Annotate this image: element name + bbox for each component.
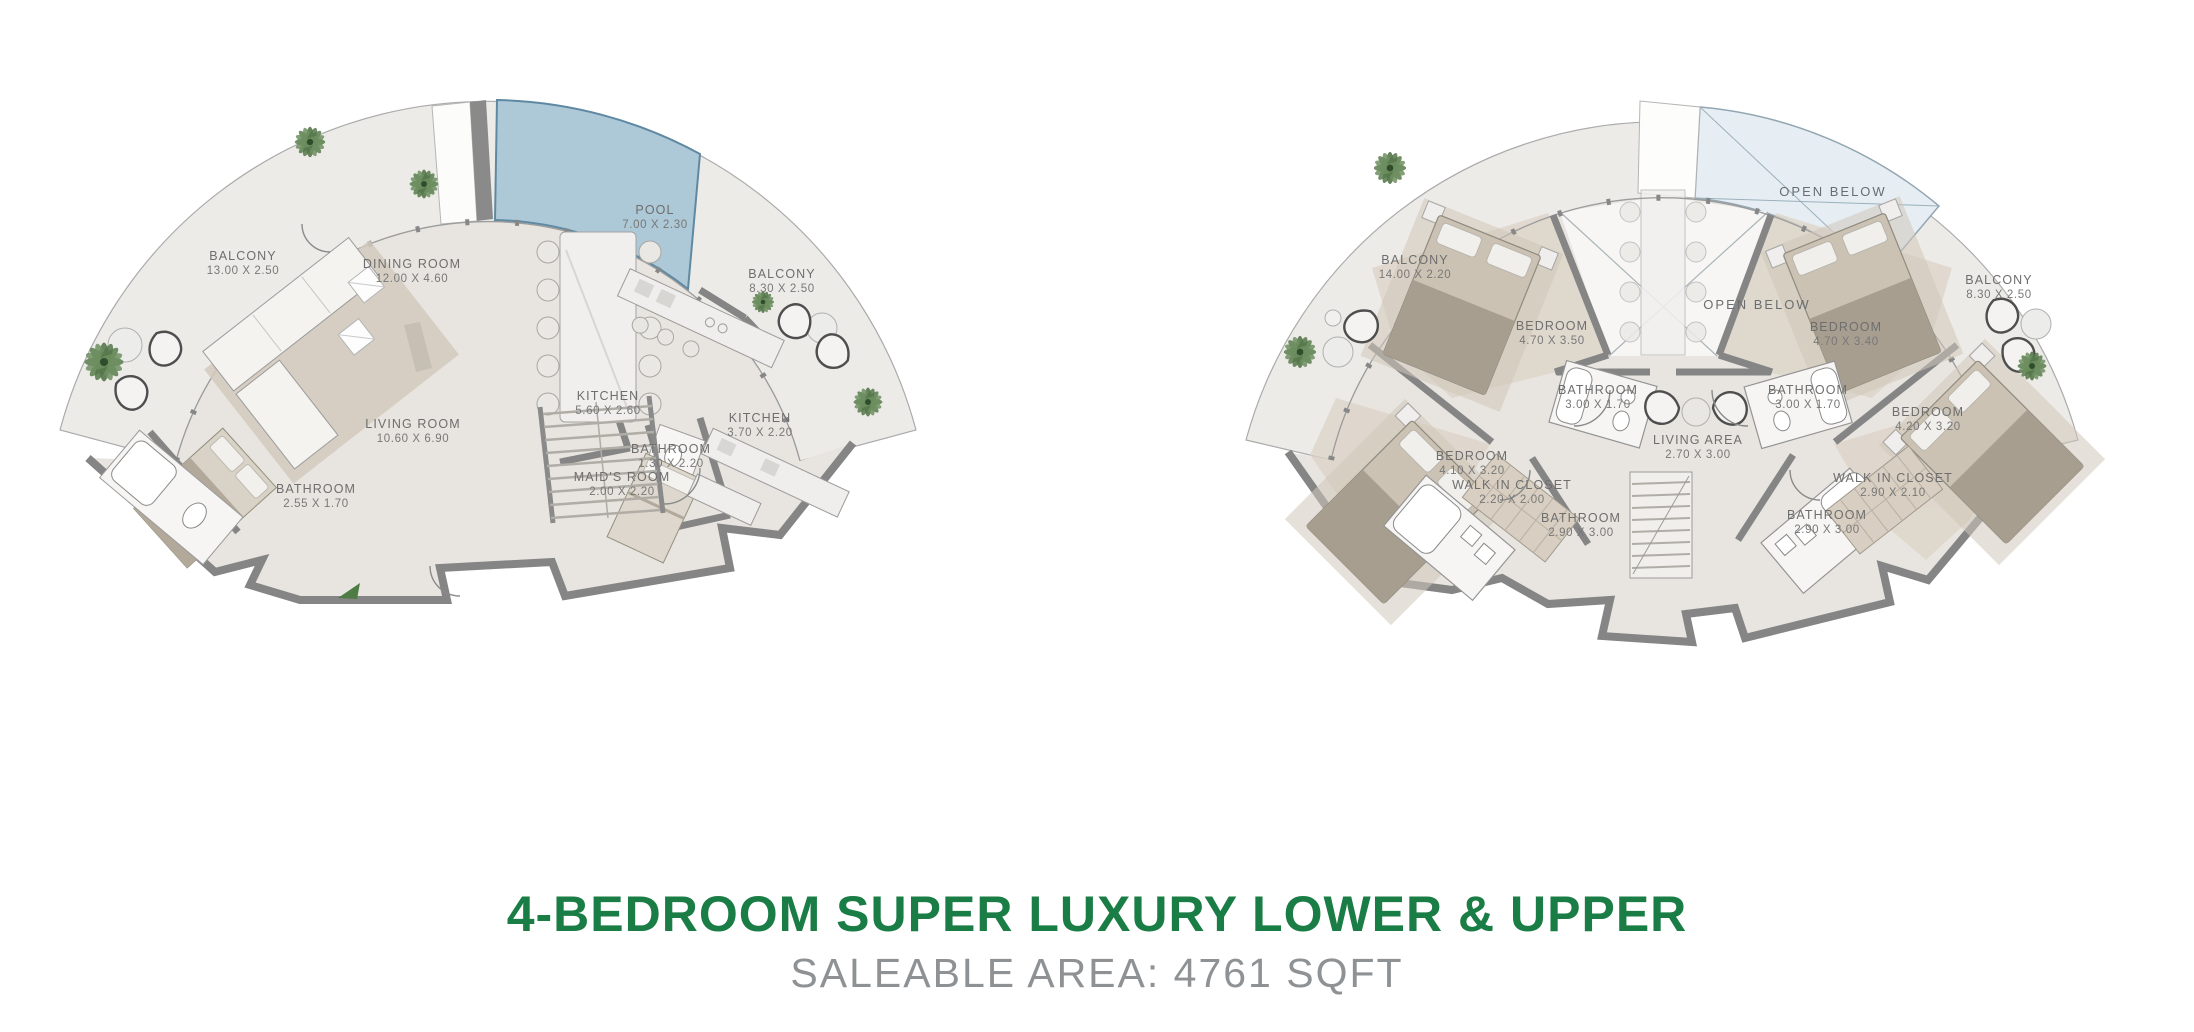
floorplan-page: { "title": { "line1": "4-BEDROOM SUPER L… [0, 0, 2194, 1032]
label-open-below-void: OPEN BELOW [1703, 297, 1810, 312]
upper-service-shaft [1638, 101, 1700, 198]
saleable-area-subtitle: SALEABLE AREA: 4761 SQFT [0, 950, 2194, 997]
title-block: 4-BEDROOM SUPER LUXURY LOWER & UPPER SAL… [0, 886, 2194, 997]
page-title: 4-BEDROOM SUPER LUXURY LOWER & UPPER [0, 886, 2194, 944]
upper-stairs [1630, 472, 1692, 578]
label-open-below-terrace: OPEN BELOW [1779, 184, 1886, 199]
lower-plan: BALCONY13.00 X 2.50 DINING ROOM12.00 X 4… [60, 100, 916, 600]
floorplan-canvas: BALCONY13.00 X 2.50 DINING ROOM12.00 X 4… [0, 0, 2194, 1032]
upper-plan: BALCONY14.00 X 2.20 OPEN BELOW OPEN BELO… [1246, 101, 2105, 642]
